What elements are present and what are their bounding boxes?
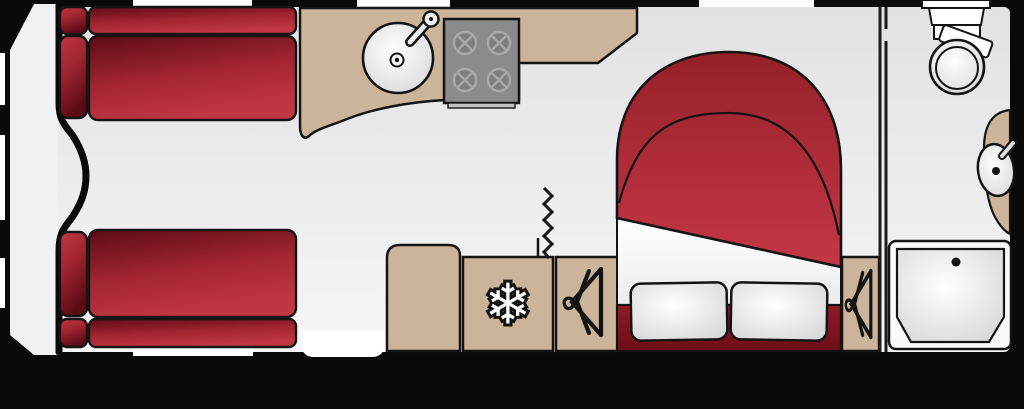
front-locker-area [10, 4, 58, 355]
snowflake-icon: ❄ [485, 273, 532, 338]
pillow-left [631, 282, 728, 341]
sofa-top-corner-cushion [60, 7, 87, 34]
tap-head-dot [429, 17, 433, 21]
wardrobe-right [842, 257, 879, 351]
top-window-2 [357, 0, 450, 7]
bottom-window-1 [133, 348, 253, 356]
kitchen-hob [444, 19, 519, 108]
fridge: ❄ ❄ [463, 257, 553, 351]
island-bed [617, 52, 841, 351]
sofa-top-armrest [60, 36, 87, 118]
front-window-2 [0, 135, 5, 220]
front-lounge-sofa-bottom [60, 230, 296, 347]
wardrobe-left [556, 257, 618, 351]
sofa-bottom-backrest [89, 319, 296, 347]
basin-drain-dot [992, 167, 1000, 175]
toilet-bowl [930, 40, 984, 94]
shower-tray [897, 249, 1004, 342]
sofa-bottom-armrest [60, 232, 87, 316]
mid-cabinet [387, 245, 460, 351]
floorplan-svg: ❄ ❄ [0, 0, 1024, 409]
front-window-1 [0, 53, 5, 105]
entrance-door [302, 331, 384, 357]
front-window-3 [0, 258, 5, 308]
sofa-bottom-corner-cushion [60, 319, 87, 347]
toilet-flange [922, 0, 990, 8]
shower-drain-dot [952, 258, 961, 267]
toilet-cistern [929, 8, 984, 25]
sink-drain-dot [395, 58, 399, 62]
hob-body [444, 19, 519, 103]
caravan-floorplan: ❄ ❄ [0, 0, 1024, 409]
sofa-top-seat [89, 36, 296, 120]
pillow-right [731, 282, 828, 341]
top-window-3 [699, 0, 814, 7]
wardrobe-right-body [842, 257, 879, 351]
sofa-bottom-seat [89, 230, 296, 317]
shower [889, 241, 1011, 349]
front-lounge-sofa-top [60, 7, 296, 120]
sofa-top-backrest [89, 7, 296, 34]
hob-lip [448, 103, 515, 108]
